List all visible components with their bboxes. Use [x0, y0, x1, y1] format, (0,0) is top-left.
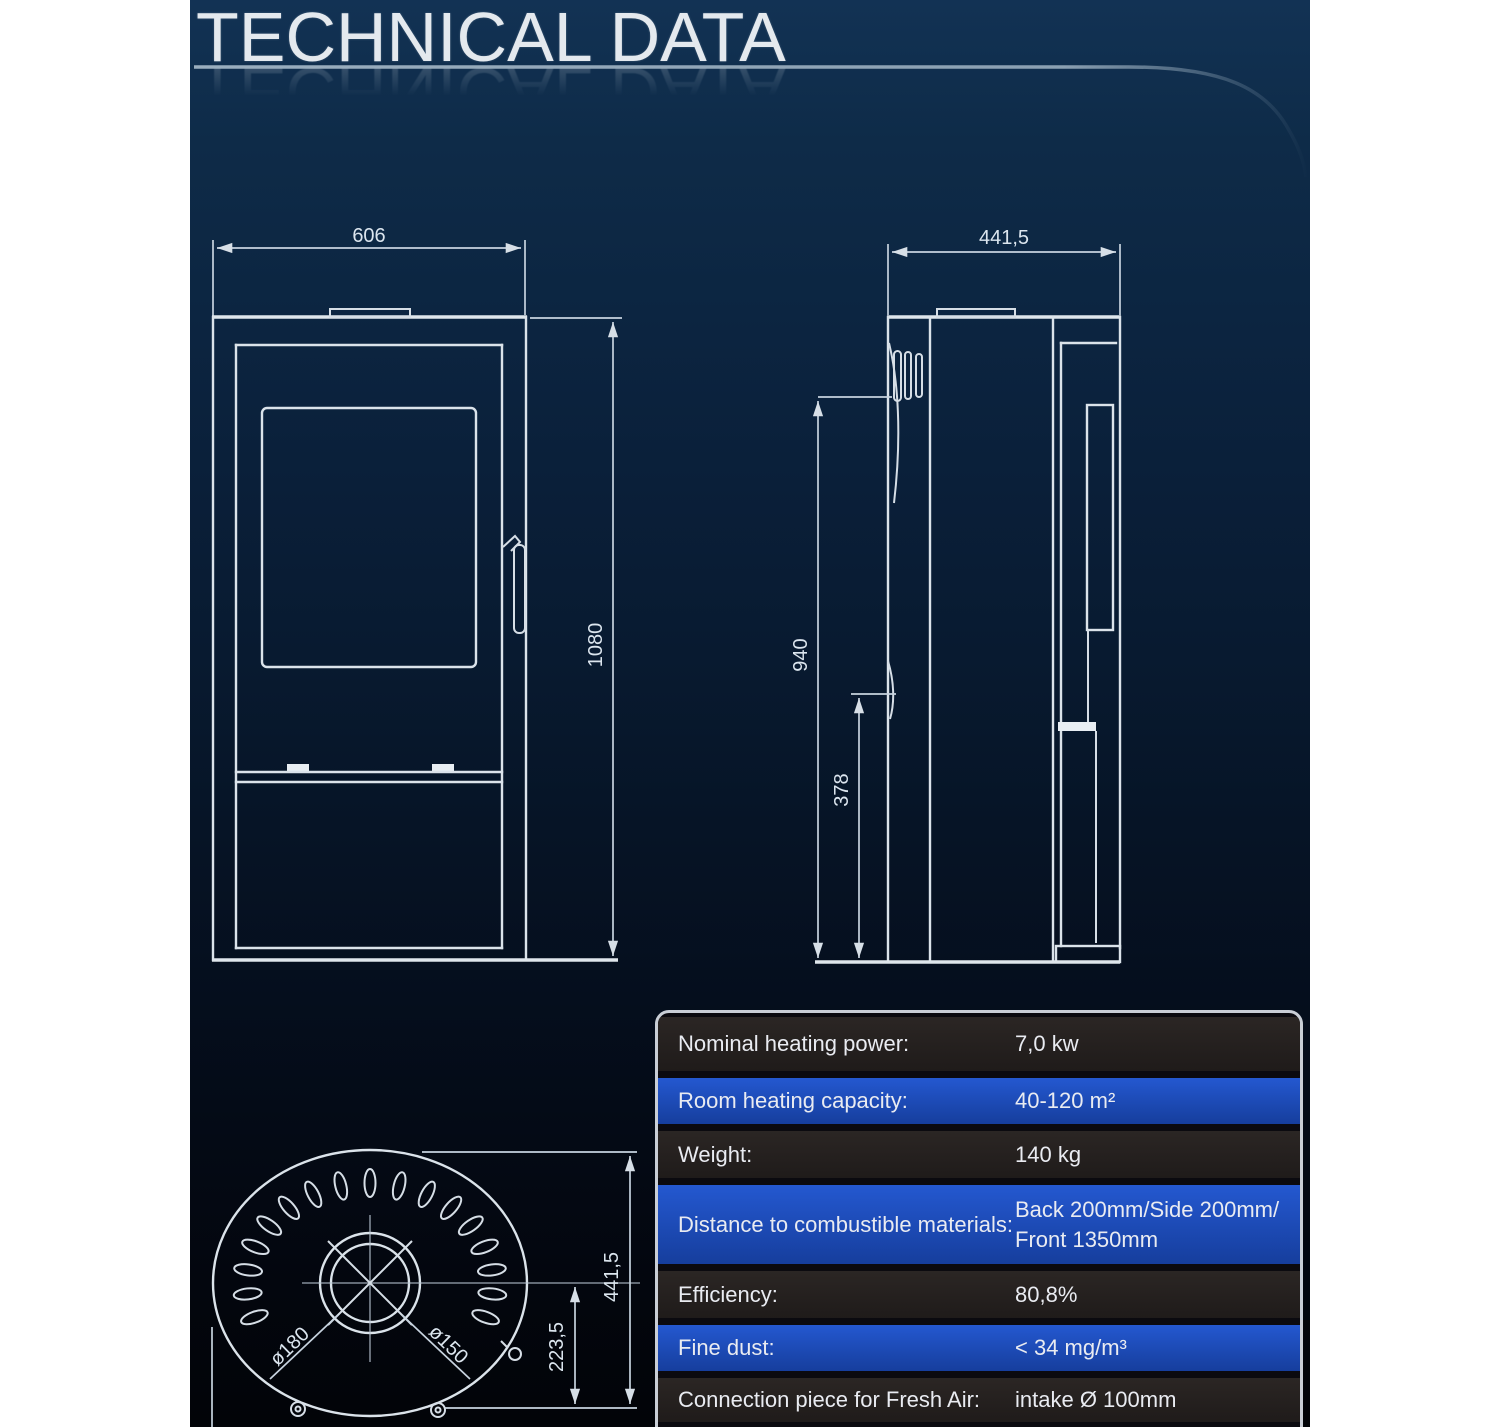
- vent-slot: [365, 1169, 376, 1197]
- row-label: Nominal heating power:: [658, 1031, 1015, 1057]
- row-value: intake Ø 100mm: [1015, 1385, 1300, 1415]
- side-depth-dimension: 441,5: [888, 227, 1120, 315]
- table-row: Connection piece for Fresh Air: intake Ø…: [658, 1378, 1300, 1422]
- front-height-label: 1080: [585, 623, 607, 668]
- flue-outer-diameter-label: ø180: [266, 1323, 314, 1370]
- vent-slot: [438, 1194, 465, 1222]
- row-value: Back 200mm/Side 200mm/ Front 1350mm: [1015, 1195, 1300, 1254]
- vent-slot: [239, 1307, 269, 1327]
- row-label: Fine dust:: [658, 1335, 1015, 1361]
- row-value: 7,0 kw: [1015, 1029, 1300, 1059]
- vent-slot: [234, 1263, 263, 1278]
- table-row: Distance to combustible materials: Back …: [658, 1185, 1300, 1264]
- title-block: TECHNICAL DATA TECHNICAL DATA: [194, 0, 1310, 220]
- side-view-drawing: 441,5: [780, 225, 1240, 985]
- top-depth-dimension: 441,5: [422, 1152, 637, 1408]
- front-door-handle: [503, 536, 520, 551]
- top-half-depth-label: 223,5: [546, 1322, 568, 1372]
- row-value: 40-120 m²: [1015, 1086, 1300, 1116]
- front-stove-outline: [212, 309, 618, 960]
- vent-slot: [478, 1287, 507, 1301]
- vent-slot: [456, 1213, 485, 1238]
- top-view-drawing: ø180 ø150 223,5 441,5: [190, 1127, 660, 1427]
- flue-outer-diameter-callout: ø180: [266, 1315, 338, 1379]
- side-upper-height-dimension: 940: [790, 397, 892, 958]
- side-rear-channel: [1087, 405, 1113, 630]
- datasheet-panel: TECHNICAL DATA TECHNICAL DATA 606: [190, 0, 1310, 1427]
- side-door-handle: [888, 343, 922, 719]
- vent-slot: [276, 1194, 303, 1222]
- spec-table: Nominal heating power: 7,0 kw Room heati…: [655, 1010, 1303, 1427]
- front-height-dimension: 1080: [530, 318, 622, 956]
- front-door-glass: [262, 408, 476, 667]
- top-foot-right: [431, 1403, 445, 1417]
- vent-slot: [415, 1179, 438, 1209]
- side-lower-height-dimension: 378: [831, 694, 896, 958]
- title-underline-swoosh: [194, 0, 1310, 210]
- side-lower-height-label: 378: [831, 773, 853, 806]
- row-label: Efficiency:: [658, 1282, 1015, 1308]
- table-row: Efficiency: 80,8%: [658, 1271, 1300, 1318]
- row-label: Distance to combustible materials:: [658, 1212, 1015, 1238]
- front-width-label: 606: [352, 225, 385, 247]
- table-row: Weight: 140 kg: [658, 1131, 1300, 1178]
- vent-slot: [240, 1237, 270, 1257]
- flue-inner-diameter-callout: ø150: [402, 1315, 472, 1379]
- top-foot-left: [291, 1402, 305, 1416]
- top-half-depth-dimension: 223,5: [546, 1287, 575, 1404]
- side-depth-label: 441,5: [979, 227, 1029, 249]
- table-row: Fine dust: < 34 mg/m³: [658, 1325, 1300, 1371]
- front-view-drawing: 606 1080: [190, 225, 660, 970]
- vent-slot: [332, 1171, 349, 1201]
- vent-slot: [302, 1179, 325, 1209]
- row-value: 80,8%: [1015, 1280, 1300, 1310]
- row-value: 140 kg: [1015, 1140, 1300, 1170]
- table-row: Room heating capacity: 40-120 m²: [658, 1078, 1300, 1124]
- side-upper-height-label: 940: [790, 638, 812, 671]
- top-bolt-detail: [509, 1348, 521, 1360]
- vent-slot: [233, 1287, 262, 1301]
- vent-slot: [391, 1171, 408, 1201]
- side-stove-outline: [815, 309, 1121, 962]
- top-depth-label: 441,5: [601, 1252, 623, 1302]
- front-width-dimension: 606: [213, 225, 525, 317]
- vent-slot: [477, 1263, 506, 1278]
- row-label: Connection piece for Fresh Air:: [658, 1387, 1015, 1413]
- side-rear-foot: [1056, 946, 1120, 962]
- vent-slot: [471, 1307, 501, 1327]
- vent-slot: [255, 1213, 284, 1238]
- row-label: Weight:: [658, 1142, 1015, 1168]
- row-label: Room heating capacity:: [658, 1088, 1015, 1114]
- row-value: < 34 mg/m³: [1015, 1333, 1300, 1363]
- flue-inner-diameter-label: ø150: [424, 1321, 472, 1368]
- vent-slot: [470, 1237, 500, 1257]
- page-background: { "header": { "title": "TECHNICAL DATA" …: [0, 0, 1500, 1427]
- table-row: Nominal heating power: 7,0 kw: [658, 1017, 1300, 1071]
